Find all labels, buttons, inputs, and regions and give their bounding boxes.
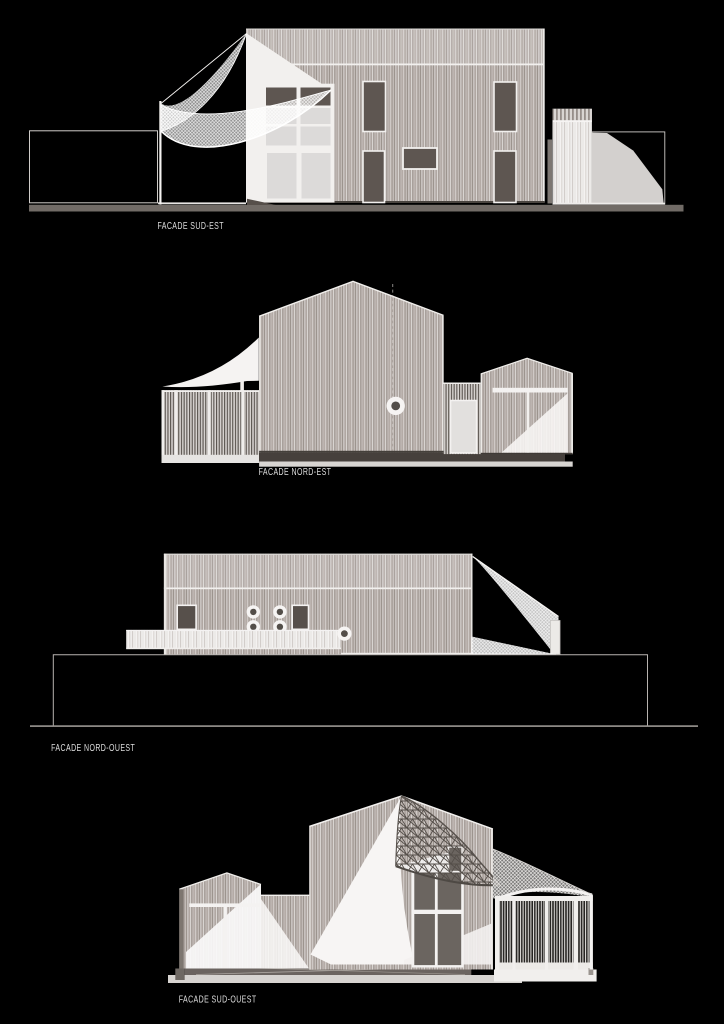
svg-text:FACADE SUD-EST: FACADE SUD-EST bbox=[157, 220, 224, 232]
svg-text:FACADE NORD-EST: FACADE NORD-EST bbox=[259, 466, 332, 478]
svg-text:FACADE SUD-OUEST: FACADE SUD-OUEST bbox=[179, 993, 257, 1005]
svg-text:FACADE NORD-OUEST: FACADE NORD-OUEST bbox=[51, 742, 135, 754]
